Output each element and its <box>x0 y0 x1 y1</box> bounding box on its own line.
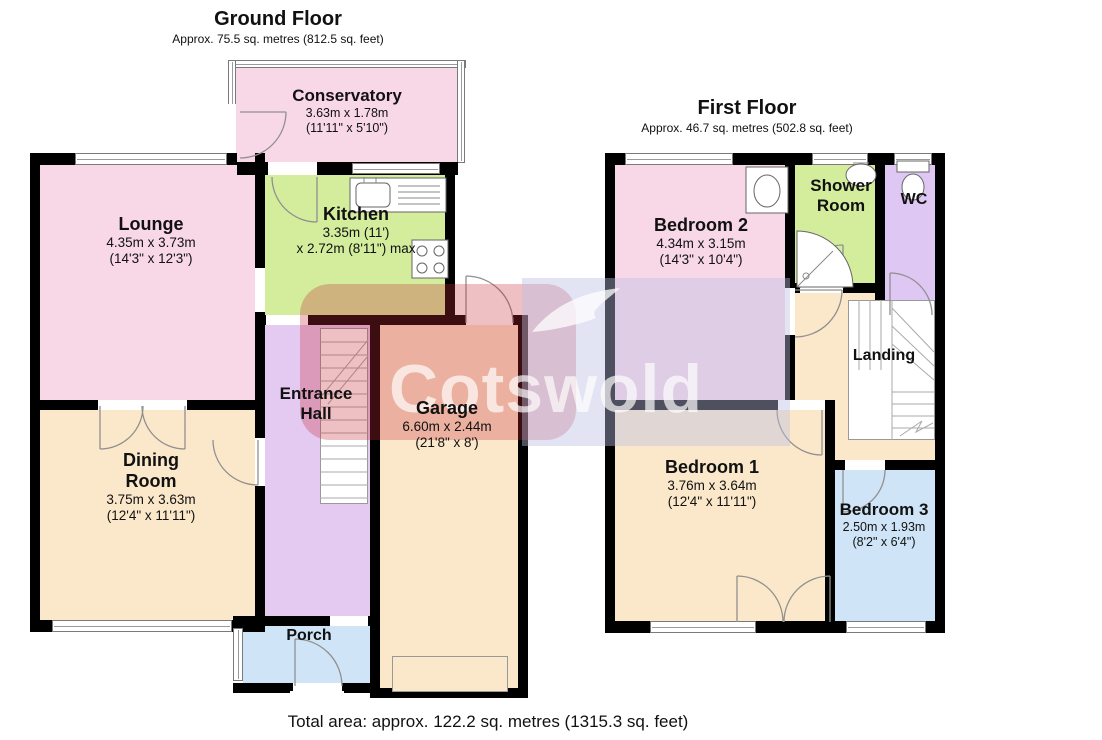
door-arc <box>737 576 783 622</box>
door-arc <box>466 276 513 323</box>
label-conservatory: Conservatory 3.63m x 1.78m (11'11" x 5'1… <box>292 86 402 136</box>
label-entrance-hall: Entrance Hall <box>280 384 353 424</box>
basin <box>754 175 780 207</box>
door-arc <box>795 290 842 337</box>
ground-floor-subtitle: Approx. 75.5 sq. metres (812.5 sq. feet) <box>172 32 383 46</box>
label-porch: Porch <box>286 627 331 646</box>
door-arc <box>890 273 932 315</box>
first-floor-title-text: First Floor <box>641 97 852 121</box>
label-dining-room: Dining Room 3.75m x 3.63m (12'4" x 11'11… <box>106 450 195 524</box>
first-floor-title: First Floor Approx. 46.7 sq. metres (502… <box>641 97 852 135</box>
hob-ring <box>417 246 427 256</box>
ground-floor-title: Ground Floor Approx. 75.5 sq. metres (81… <box>172 8 383 46</box>
first-floor-subtitle: Approx. 46.7 sq. metres (502.8 sq. feet) <box>641 121 852 135</box>
floorplan-canvas: Cotswold Ground Floor Approx. 75.5 sq. m… <box>0 0 1102 740</box>
detail-overlay <box>0 0 1102 740</box>
label-wc: WC <box>901 191 928 210</box>
door-arc <box>295 639 342 686</box>
hob-ring <box>434 263 444 273</box>
door-arc <box>240 112 286 158</box>
kitchen-hob <box>412 240 448 278</box>
total-area-text: Total area: approx. 122.2 sq. metres (13… <box>288 712 689 732</box>
label-bedroom2: Bedroom 2 4.34m x 3.15m (14'3" x 10'4") <box>654 215 748 268</box>
label-bedroom1: Bedroom 1 3.76m x 3.64m (12'4" x 11'11") <box>665 457 759 510</box>
label-garage: Garage 6.60m x 2.44m (21'8" x 8') <box>402 398 491 451</box>
label-lounge: Lounge 4.35m x 3.73m (14'3" x 12'3") <box>106 214 195 267</box>
door-arc <box>142 406 185 449</box>
toilet-cistern <box>897 161 929 172</box>
label-kitchen: Kitchen 3.35m (11') x 2.72m (8'11") max <box>297 204 416 257</box>
stair-treads <box>859 300 934 440</box>
hob-ring <box>417 263 427 273</box>
label-landing: Landing <box>853 347 915 366</box>
ground-floor-title-text: Ground Floor <box>172 8 383 32</box>
door-arc <box>777 410 822 455</box>
door-arc <box>213 440 258 485</box>
door-arc <box>784 576 830 622</box>
label-shower-room: Shower Room <box>810 176 871 216</box>
label-bedroom3: Bedroom 3 2.50m x 1.93m (8'2" x 6'4") <box>840 500 929 550</box>
door-arc <box>100 406 143 449</box>
hob-ring <box>434 246 444 256</box>
